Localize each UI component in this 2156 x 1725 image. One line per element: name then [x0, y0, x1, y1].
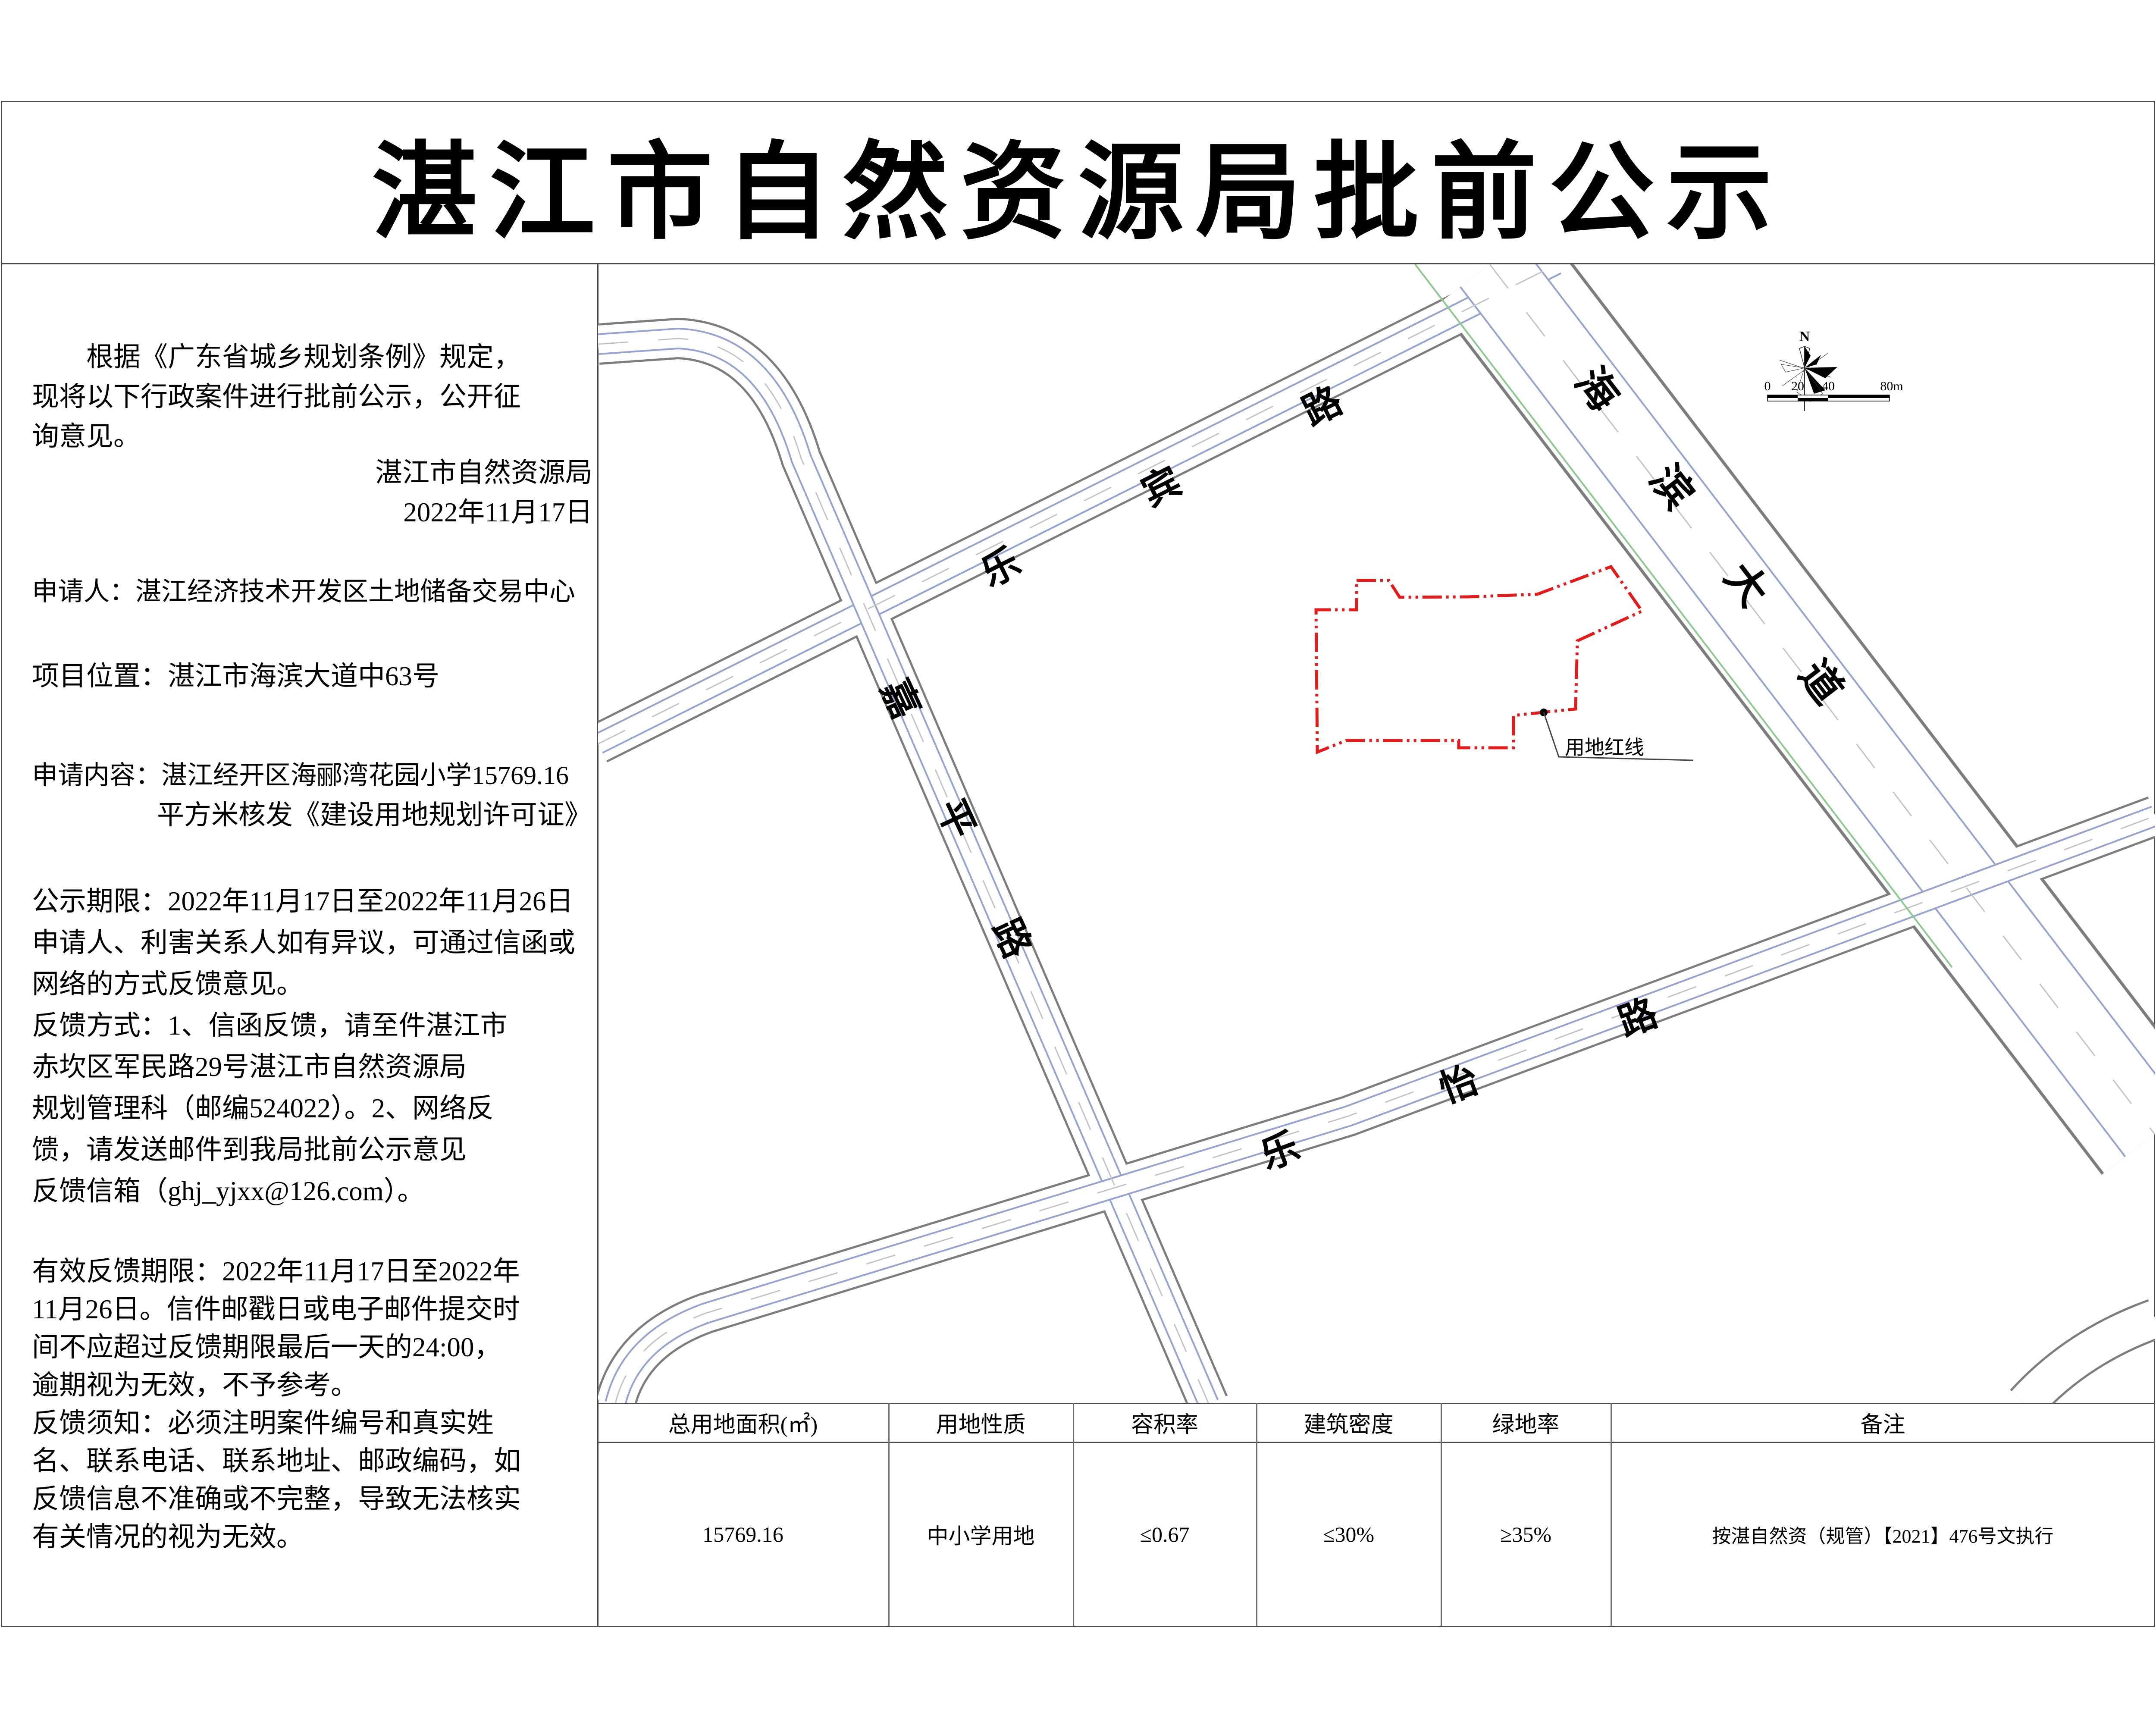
table-header-far: 容积率	[1074, 1403, 1255, 1442]
table-value-green: ≥35%	[1442, 1443, 1610, 1626]
table-header-area: 总用地面积(㎡)	[599, 1403, 887, 1442]
validity-line: 间不应超过反馈期限最后一天的24:00，	[32, 1328, 592, 1366]
validity-line: 11月26日。信件邮戳日或电子邮件提交时	[32, 1290, 592, 1328]
page-title: 湛江市自然资源局批前公示	[372, 107, 1784, 260]
green-boundary-line	[1415, 264, 1952, 967]
table-value-remark: 按湛自然资（规管）【2021】476号文执行	[1612, 1443, 2154, 1626]
road-label-lebin: 乐宾路	[975, 316, 1476, 595]
period-line: 公示期限：2022年11月17日至2022年11月26日	[32, 881, 592, 922]
road-inner-lines	[598, 264, 2155, 1404]
scale-tick: 0	[1764, 379, 1771, 393]
project-location-line: 项目位置：湛江市海滨大道中63号	[32, 656, 592, 696]
table-value-usage: 中小学用地	[890, 1443, 1072, 1626]
period-line: 反馈方式：1、信函反馈，请至件湛江市	[32, 1005, 592, 1046]
intro-line: 询意见。	[32, 417, 592, 456]
road-label-jiaping: 嘉平路	[873, 673, 1078, 1050]
scale-tick: 80m	[1880, 379, 1903, 393]
application-content-line: 申请内容：湛江经开区海郦湾花园小学15769.16	[32, 756, 592, 795]
validity-line: 反馈须知：必须注明案件编号和真实姓	[32, 1404, 592, 1442]
scale-bar: 0 20 40 80m	[1764, 379, 1903, 401]
signature-block: 湛江市自然资源局 2022年11月17日	[32, 453, 624, 532]
period-line: 网络的方式反馈意见。	[32, 963, 592, 1005]
validity-line: 名、联系电话、联系地址、邮政编码，如	[32, 1442, 592, 1480]
feedback-email-line: 反馈信箱（ghj_yjxx@126.com）。	[32, 1170, 592, 1212]
scale-tick: 40	[1822, 379, 1835, 393]
validity-line: 有效反馈期限：2022年11月17日至2022年	[32, 1252, 592, 1290]
compass-north-label: N	[1799, 329, 1810, 345]
parcel-label: 用地红线	[1565, 737, 1644, 759]
validity-line: 有关情况的视为无效。	[32, 1518, 592, 1556]
road-label-haibin: 海滨大道	[1567, 359, 1902, 778]
title-band: 湛江市自然资源局批前公示	[1, 102, 2155, 264]
table-header-usage: 用地性质	[890, 1403, 1072, 1442]
validity-block: 有效反馈期限：2022年11月17日至2022年 11月26日。信件邮戳日或电子…	[32, 1252, 592, 1556]
intro-line: 根据《广东省城乡规划条例》规定，	[32, 337, 592, 377]
period-line: 申请人、利害关系人如有异议，可通过信函或	[32, 922, 592, 963]
period-line: 规划管理科（邮编524022）。2、网络反	[32, 1088, 592, 1129]
table-header-remark: 备注	[1612, 1403, 2154, 1442]
validity-line: 逾期视为无效，不予参考。	[32, 1366, 592, 1404]
table-header-density: 建筑密度	[1257, 1403, 1440, 1442]
validity-line: 反馈信息不准确或不完整，导致无法核实	[32, 1480, 592, 1518]
table-value-far: ≤0.67	[1074, 1443, 1255, 1626]
intro-paragraph: 根据《广东省城乡规划条例》规定， 现将以下行政案件进行批前公示，公开征 询意见。	[32, 337, 592, 456]
scale-tick: 20	[1791, 379, 1804, 393]
period-line: 馈，请发送邮件到我局批前公示意见	[32, 1129, 592, 1170]
site-map: 乐宾路 海滨大道 嘉平路 乐怡路 用地红线 N 0	[598, 264, 2155, 1404]
table-value-area: 15769.16	[599, 1443, 887, 1626]
signature-org: 湛江市自然资源局	[32, 453, 592, 492]
period-line: 赤坎区军民路29号湛江市自然资源局	[32, 1046, 592, 1088]
table-header-green: 绿地率	[1442, 1403, 1610, 1442]
table-value-density: ≤30%	[1257, 1443, 1440, 1626]
intro-line: 现将以下行政案件进行批前公示，公开征	[32, 377, 592, 417]
publicity-period-block: 公示期限：2022年11月17日至2022年11月26日 申请人、利害关系人如有…	[32, 881, 592, 1212]
road-label-leyi: 乐怡路	[1255, 939, 1806, 1178]
parcel-red-line	[1316, 567, 1642, 752]
applicant-line: 申请人：湛江经济技术开发区土地储备交易中心	[32, 572, 592, 612]
notice-text-panel: 根据《广东省城乡规划条例》规定， 现将以下行政案件进行批前公示，公开征 询意见。…	[1, 265, 597, 1627]
parcel-annotation: 用地红线	[1540, 709, 1693, 760]
signature-date: 2022年11月17日	[32, 492, 592, 532]
application-content-line: 平方米核发《建设用地规划许可证》	[32, 795, 592, 835]
notice-page: 湛江市自然资源局批前公示 根据《广东省城乡规划条例》规定， 现将以下行政案件进行…	[0, 0, 2156, 1725]
application-content-block: 申请内容：湛江经开区海郦湾花园小学15769.16 平方米核发《建设用地规划许可…	[32, 756, 592, 835]
